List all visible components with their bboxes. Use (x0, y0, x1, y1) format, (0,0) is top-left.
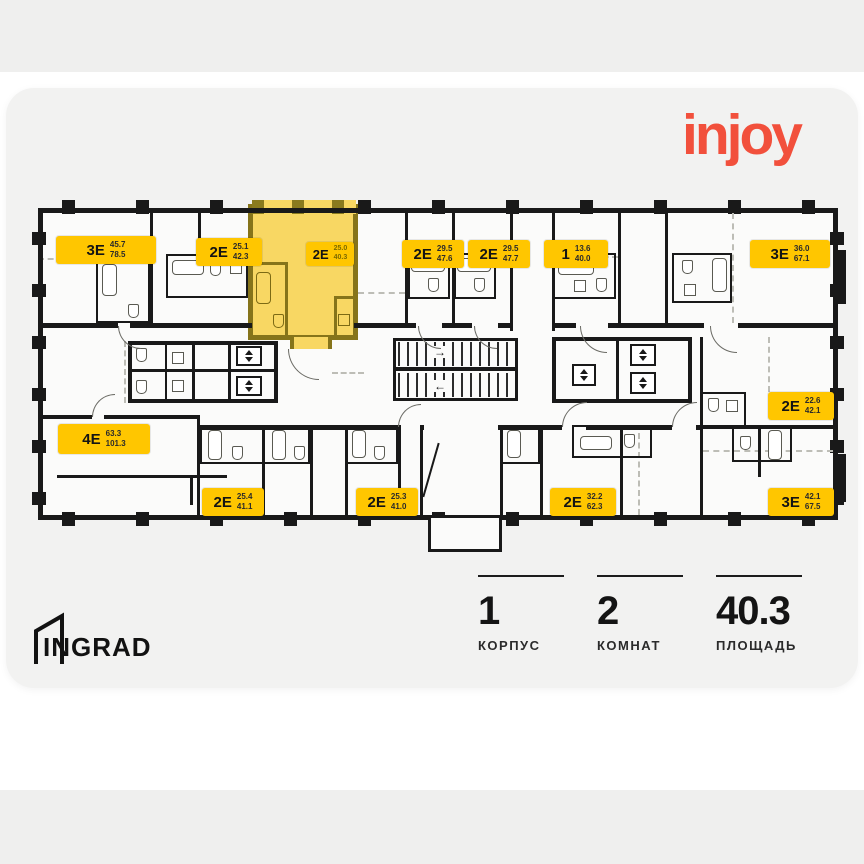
stair-landing-wall (396, 367, 515, 371)
toilet-icon (232, 446, 243, 460)
unit-areas: 63.3101.3 (106, 429, 126, 449)
unit-area-total: 67.1 (794, 254, 810, 264)
wall (130, 323, 252, 328)
unit-area-living: 42.1 (805, 492, 821, 502)
wall (510, 213, 513, 331)
unit-area-living: 45.7 (110, 240, 126, 250)
toilet-icon (294, 446, 305, 460)
unit-badge[interactable]: 4Е 63.3101.3 (58, 424, 150, 454)
unit-badge[interactable]: 3Е 36.067.1 (750, 240, 830, 268)
unit-area-living: 32.2 (587, 492, 603, 502)
unit-code: 2Е (782, 398, 800, 415)
appliance-icon (574, 280, 586, 292)
unit-code: 2Е (564, 494, 582, 511)
wall (420, 425, 423, 515)
wall (38, 415, 92, 419)
appliance-icon (726, 400, 738, 412)
unit-area-living: 13.6 (575, 244, 591, 254)
summary-area: 40.3 ПЛОЩАДЬ (716, 575, 802, 653)
bottom-band (0, 790, 864, 864)
staircase (393, 338, 518, 401)
unit-code: 2Е (313, 247, 329, 262)
wall (354, 323, 416, 328)
unit-code: 1 (562, 246, 570, 263)
wall-outer-top (38, 208, 838, 213)
bathtub-icon (272, 430, 286, 460)
unit-areas: 45.778.5 (110, 240, 126, 260)
unit-badge[interactable]: 1 13.640.0 (544, 240, 608, 268)
summary-building: 1 КОРПУС (478, 575, 564, 653)
unit-area-total: 101.3 (106, 439, 126, 449)
wall (190, 475, 193, 505)
summary-divider (597, 575, 683, 577)
toilet-icon (273, 314, 284, 328)
unit-areas: 29.547.6 (437, 244, 453, 264)
unit-badge[interactable]: 2Е 22.642.1 (768, 392, 834, 420)
bathtub-icon (712, 258, 727, 292)
highlight-entry (290, 337, 332, 349)
wall (618, 213, 621, 323)
bathtub-icon (580, 436, 612, 450)
stair-arrow-down: ← (432, 380, 448, 392)
dashed-line (732, 213, 734, 323)
unit-badge[interactable]: 2Е 25.142.3 (196, 238, 262, 266)
injoy-logo: injoy (682, 102, 800, 168)
elevator-icon (236, 346, 262, 366)
summary-divider (716, 575, 802, 577)
ingrad-logo-text: INGRAD (43, 632, 152, 662)
balcony-right-1 (838, 250, 846, 304)
toilet-icon (128, 304, 139, 318)
toilet-icon (428, 278, 439, 292)
unit-area-living: 36.0 (794, 244, 810, 254)
toilet-icon (708, 398, 719, 412)
unit-badge[interactable]: 2Е 32.262.3 (550, 488, 616, 516)
wall (552, 323, 576, 328)
unit-code: 3Е (782, 494, 800, 511)
floor-plan[interactable]: → ← (32, 196, 844, 564)
unit-badge-highlighted[interactable]: 2Е 25.040.3 (306, 242, 354, 266)
unit-area-living: 25.1 (233, 242, 249, 252)
unit-badge[interactable]: 2Е 29.547.7 (468, 240, 530, 268)
unit-area-total: 62.3 (587, 502, 603, 512)
dashed-line (358, 292, 405, 294)
unit-areas: 42.167.5 (805, 492, 821, 512)
summary-rooms-value: 2 (597, 589, 683, 634)
unit-area-total: 67.5 (805, 502, 821, 512)
unit-badge[interactable]: 2Е 29.547.6 (402, 240, 464, 268)
unit-areas: 25.142.3 (233, 242, 249, 262)
unit-area-total: 47.7 (503, 254, 519, 264)
appliance-icon (338, 314, 350, 326)
unit-code: 2Е (368, 494, 386, 511)
bathtub-icon (352, 430, 366, 458)
summary-building-label: КОРПУС (478, 638, 564, 653)
unit-code: 3Е (87, 242, 105, 259)
toilet-icon (596, 278, 607, 292)
unit-areas: 36.067.1 (794, 244, 810, 264)
unit-areas: 29.547.7 (503, 244, 519, 264)
toilet-icon (474, 278, 485, 292)
ingrad-logo: INGRAD (26, 606, 158, 675)
unit-areas: 25.040.3 (334, 245, 348, 263)
elevator-icon (630, 344, 656, 366)
unit-area-living: 29.5 (503, 244, 519, 254)
unit-area-total: 42.3 (233, 252, 249, 262)
highlight-wall (285, 262, 288, 338)
unit-area-living: 25.0 (334, 245, 348, 254)
bathtub-icon (256, 272, 271, 304)
wall (616, 339, 619, 401)
toilet-icon (136, 380, 147, 394)
unit-area-living: 29.5 (437, 244, 453, 254)
appliance-icon (172, 352, 184, 364)
wall (150, 213, 153, 323)
appliance-icon (684, 284, 696, 296)
wall-outer-left (38, 208, 43, 520)
wall (192, 343, 195, 401)
ingrad-logo-graphic: INGRAD (26, 606, 158, 670)
toilet-icon (136, 348, 147, 362)
summary-rooms: 2 КОМНАТ (597, 575, 683, 653)
highlight-wall (334, 296, 353, 299)
unit-area-total: 47.6 (437, 254, 453, 264)
summary-building-value: 1 (478, 589, 564, 634)
unit-area-total: 40.0 (575, 254, 591, 264)
unit-area-total: 41.1 (237, 502, 253, 512)
unit-code: 2Е (214, 494, 232, 511)
listing-page: injoy (0, 0, 864, 864)
entrance-porch (428, 518, 502, 552)
wall (608, 323, 704, 328)
unit-code: 2Е (210, 244, 228, 261)
unit-code: 4Е (82, 431, 100, 448)
summary-rooms-label: КОМНАТ (597, 638, 683, 653)
unit-areas: 13.640.0 (575, 244, 591, 264)
unit-code: 2Е (480, 246, 498, 263)
unit-code: 3Е (771, 246, 789, 263)
highlight-wall (334, 296, 337, 338)
unit-area-living: 25.4 (237, 492, 253, 502)
toilet-icon (740, 436, 751, 450)
unit-badge[interactable]: 2Е 25.341.0 (356, 488, 418, 516)
toilet-icon (374, 446, 385, 460)
wall (165, 343, 167, 401)
dashed-line (768, 337, 770, 392)
elevator-icon (236, 376, 262, 396)
bathtub-icon (507, 430, 521, 458)
elevator-icon (572, 364, 596, 386)
wall (130, 369, 276, 372)
bathtub-icon (768, 430, 782, 460)
unit-badge[interactable]: 3Е 42.167.5 (768, 488, 834, 516)
dashed-line (332, 372, 364, 374)
stair-treads (398, 373, 513, 397)
appliance-icon (172, 380, 184, 392)
summary-area-label: ПЛОЩАДЬ (716, 638, 802, 653)
wall (540, 425, 543, 515)
balcony-right-2 (838, 454, 846, 502)
wall (228, 343, 231, 401)
unit-areas: 25.341.0 (391, 492, 407, 512)
unit-code: 2Е (414, 246, 432, 263)
unit-areas: 25.441.1 (237, 492, 253, 512)
unit-badge[interactable]: 3Е 45.778.5 (56, 236, 156, 264)
wall (442, 323, 472, 328)
top-band (0, 0, 864, 72)
bathtub-icon (102, 264, 117, 296)
unit-area-total: 41.0 (391, 502, 407, 512)
unit-areas: 22.642.1 (805, 396, 821, 416)
unit-area-total: 78.5 (110, 250, 126, 260)
summary-divider (478, 575, 564, 577)
unit-area-living: 22.6 (805, 396, 821, 406)
wall (38, 323, 118, 328)
wall (498, 323, 510, 328)
unit-areas: 32.262.3 (587, 492, 603, 512)
toilet-icon (624, 434, 635, 448)
bathroom (700, 392, 746, 427)
unit-area-living: 25.3 (391, 492, 407, 502)
toilet-icon (682, 260, 693, 274)
wall (104, 415, 197, 419)
unit-area-total: 40.3 (334, 254, 348, 263)
wall (738, 323, 838, 328)
unit-badge[interactable]: 2Е 25.441.1 (202, 488, 264, 516)
bathtub-icon (208, 430, 222, 460)
unit-area-living: 63.3 (106, 429, 126, 439)
wall (310, 425, 313, 515)
summary-area-value: 40.3 (716, 589, 802, 634)
elevator-icon (630, 372, 656, 394)
wall (57, 475, 227, 478)
wall (665, 213, 668, 323)
unit-area-total: 42.1 (805, 406, 821, 416)
dashed-line (124, 341, 126, 403)
